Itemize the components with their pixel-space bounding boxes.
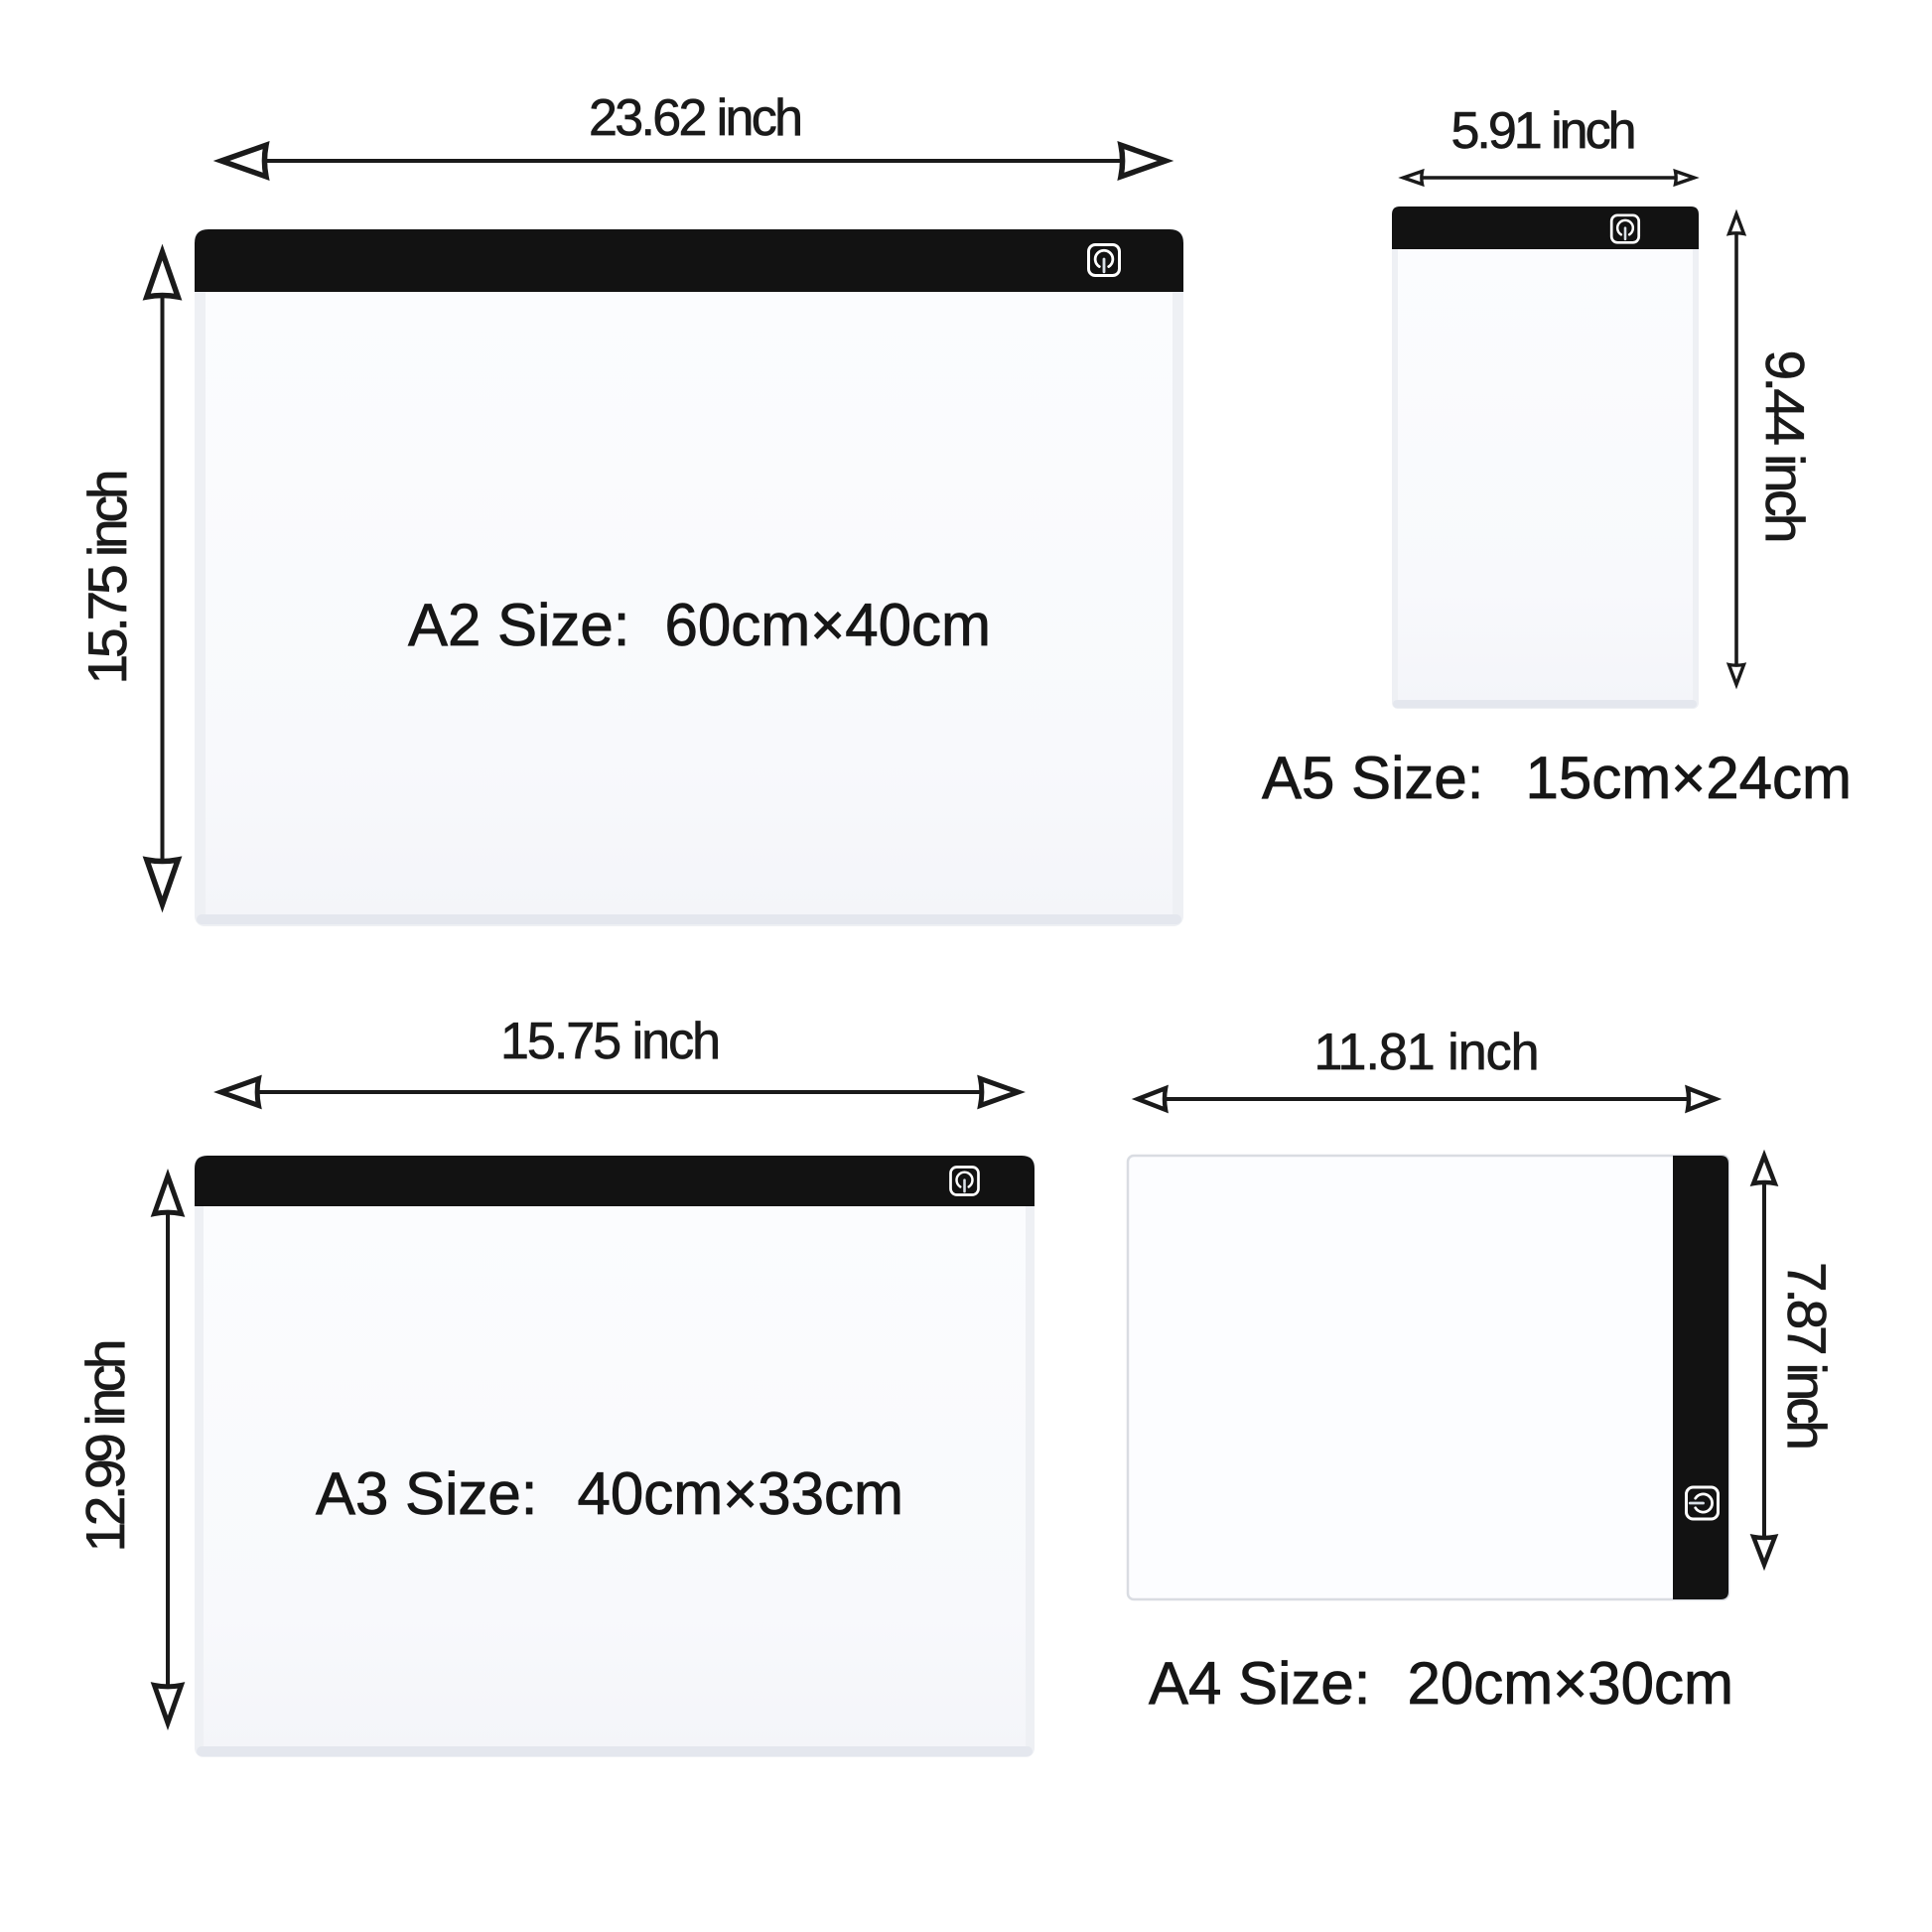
svg-text:15.75 inch: 15.75 inch	[76, 470, 138, 685]
svg-text:12.99 inch: 12.99 inch	[74, 1339, 136, 1553]
svg-text:A5 Size:15cm×24cm: A5 Size:15cm×24cm	[1262, 745, 1852, 811]
svg-text:A4 Size:20cm×30cm: A4 Size:20cm×30cm	[1149, 1650, 1733, 1717]
svg-text:23.62 inch: 23.62 inch	[589, 89, 803, 147]
svg-text:15.75 inch: 15.75 inch	[500, 1013, 721, 1070]
svg-text:5.91 inch: 5.91 inch	[1451, 102, 1637, 160]
svg-text:A2 Size:60cm×40cm: A2 Size:60cm×40cm	[408, 592, 991, 658]
svg-text:7.87 inch: 7.87 inch	[1776, 1262, 1838, 1450]
svg-text:11.81 inch: 11.81 inch	[1314, 1024, 1540, 1081]
svg-text:A3 Size:40cm×33cm: A3 Size:40cm×33cm	[316, 1460, 903, 1527]
svg-text:9.44 inch: 9.44 inch	[1754, 350, 1816, 544]
